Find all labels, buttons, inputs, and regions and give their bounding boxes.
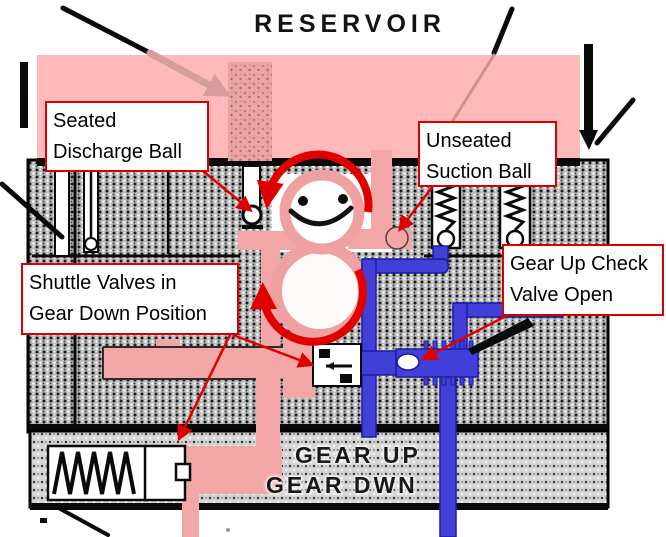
callout-line: Seated: [53, 106, 201, 137]
leader-top-right: [494, 9, 512, 53]
callout-line: Discharge Ball: [53, 137, 201, 168]
callout-line: Suction Ball: [426, 157, 549, 188]
callout-line: Gear Up Check: [510, 249, 656, 280]
unseated-suction-ball: [386, 227, 408, 249]
callout-gear-up-check-valve: Gear Up Check Valve Open: [502, 244, 664, 316]
shuttle-valve: [313, 344, 361, 386]
callout-unseated-suction-ball: Unseated Suction Ball: [418, 121, 557, 187]
gear-up-label: GEAR UP: [295, 442, 421, 469]
callout-line: Gear Down Position: [29, 299, 231, 330]
pump-piston-chambers: [276, 175, 364, 335]
gear-down-label: GEAR DWN: [266, 472, 418, 499]
return-spring-piston: [48, 446, 190, 500]
reservoir-filter: [228, 62, 272, 161]
leader-bottom-left: [55, 506, 108, 535]
leader-bar-left: [20, 62, 28, 128]
callout-line: Valve Open: [510, 280, 656, 311]
callout-seated-discharge-ball: Seated Discharge Ball: [45, 101, 209, 172]
callout-line: Unseated: [426, 126, 549, 157]
callout-line: Shuttle Valves in: [29, 268, 231, 299]
leader-bar-right: [584, 44, 593, 132]
callout-shuttle-valves: Shuttle Valves in Gear Down Position: [21, 263, 239, 335]
reservoir-label: RESERVOIR: [240, 10, 460, 39]
hydraulic-hand-pump-diagram: RESERVOIR Seated Discharge Ball Unseated…: [0, 0, 666, 537]
leader-top-left: [63, 8, 150, 53]
